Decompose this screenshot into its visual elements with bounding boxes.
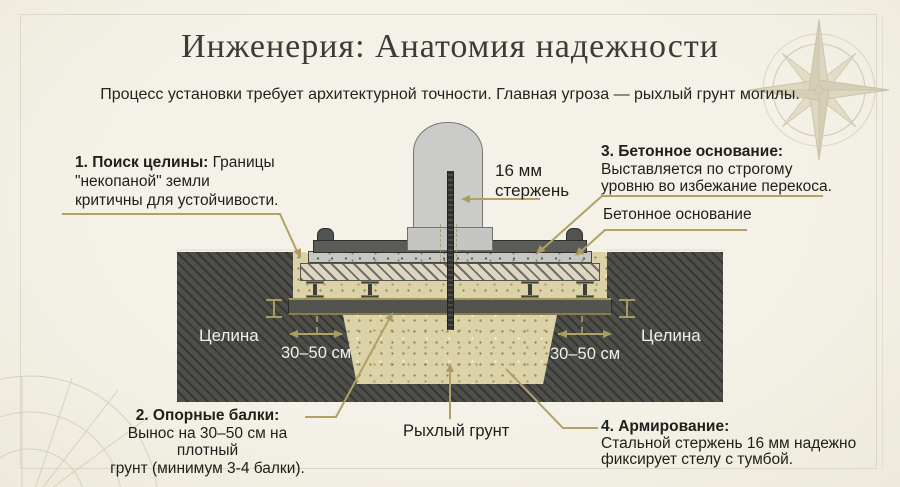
i-beam-section-2 (361, 281, 379, 298)
i-beam-web (368, 284, 372, 295)
callout-heading: 4. Армирование: (601, 418, 729, 435)
leader-concrete-base-underline (604, 229, 747, 231)
anchor-pin-left (316, 316, 318, 333)
i-beam-section-1 (306, 281, 324, 298)
dimension-arrow-left-start (289, 330, 298, 338)
callout-support-beams: 2. Опорные балки: Вынос на 30–50 см на п… (95, 407, 320, 477)
infographic-canvas: Инженерия: Анатомия надежности Процесс у… (0, 0, 900, 487)
steel-rod (447, 171, 454, 330)
callout-heading: 1. Поиск целины: (75, 154, 208, 171)
rod-label-line: 16 мм (495, 161, 569, 181)
callout-text: Стальной стержень 16 мм надежно (601, 436, 861, 453)
callout-reinforcement: 4. Армирование: Стальной стержень 16 мм … (601, 419, 861, 469)
callout-text: Границы (208, 154, 274, 171)
callout-heading-row: 4. Армирование: (601, 419, 861, 436)
callout-virgin-soil-search: 1. Поиск целины: Границы "некопаной" зем… (75, 153, 325, 210)
loose-soil-label: Рыхлый грунт (403, 422, 509, 441)
corner-post-left (317, 228, 334, 241)
callout-line: 1. Поиск целины: Границы (75, 153, 325, 172)
callout-heading: 3. Бетонное основание: (601, 143, 783, 160)
callout-text: уровню во избежание перекоса. (601, 178, 851, 196)
callout-text: "некопаной" земли (75, 172, 325, 191)
leader-rod-arrow (461, 195, 470, 203)
overhang-dimension-label-left: 30–50 см (281, 344, 351, 363)
dimension-arrow-right-start (558, 330, 567, 338)
rod-label-line: стержень (495, 181, 569, 201)
i-beam-web (528, 284, 532, 295)
callout-text: фиксирует стелу с тумбой. (601, 452, 861, 469)
i-beam-section-4 (576, 281, 594, 298)
leader-loose-soil-arrow (446, 363, 454, 372)
i-beam-section-3 (521, 281, 539, 298)
i-beam-web (313, 284, 317, 295)
concrete-base-label: Бетонное основание (603, 205, 752, 224)
callout-heading: 2. Опорные балки: (136, 407, 280, 424)
dimension-arrow-right-end (603, 330, 612, 338)
virgin-soil-label-left: Целина (199, 326, 259, 346)
callout-text: грунт (минимум 3-4 балки). (95, 460, 320, 478)
beam-end-symbol-right (619, 316, 635, 318)
ground-surface-line-right (606, 249, 723, 251)
overhang-dimension-label-right: 30–50 см (550, 345, 620, 364)
page-subtitle: Процесс установки требует архитектурной … (0, 86, 900, 104)
leader-virgin-soil-underline (62, 213, 281, 215)
virgin-soil-label-right: Целина (641, 326, 701, 346)
callout-concrete-foundation: 3. Бетонное основание: Выставляется по с… (601, 143, 851, 196)
corner-post-right (566, 228, 583, 241)
beam-end-symbol-left (266, 316, 282, 318)
callout-text: Вынос на 30–50 см на плотный (95, 425, 320, 460)
i-beam-web (583, 284, 587, 295)
ground-surface-line-left (177, 249, 298, 251)
dimension-arrow-left-end (334, 330, 343, 338)
page-title: Инженерия: Анатомия надежности (0, 28, 900, 66)
callout-text: критичны для устойчивости. (75, 191, 325, 210)
rod-hole-dashed-left (440, 224, 441, 262)
callout-text: Выставляется по строгому (601, 161, 851, 179)
callout-heading-row: 2. Опорные балки: (95, 407, 320, 425)
leader-loose-soil-line (449, 366, 451, 419)
leader-reinforcement-tail (562, 427, 598, 429)
callout-heading-row: 3. Бетонное основание: (601, 143, 851, 161)
rod-diameter-label: 16 мм стержень (495, 161, 569, 201)
rod-hole-dashed-right (456, 224, 457, 262)
anchor-pin-right (581, 316, 583, 333)
